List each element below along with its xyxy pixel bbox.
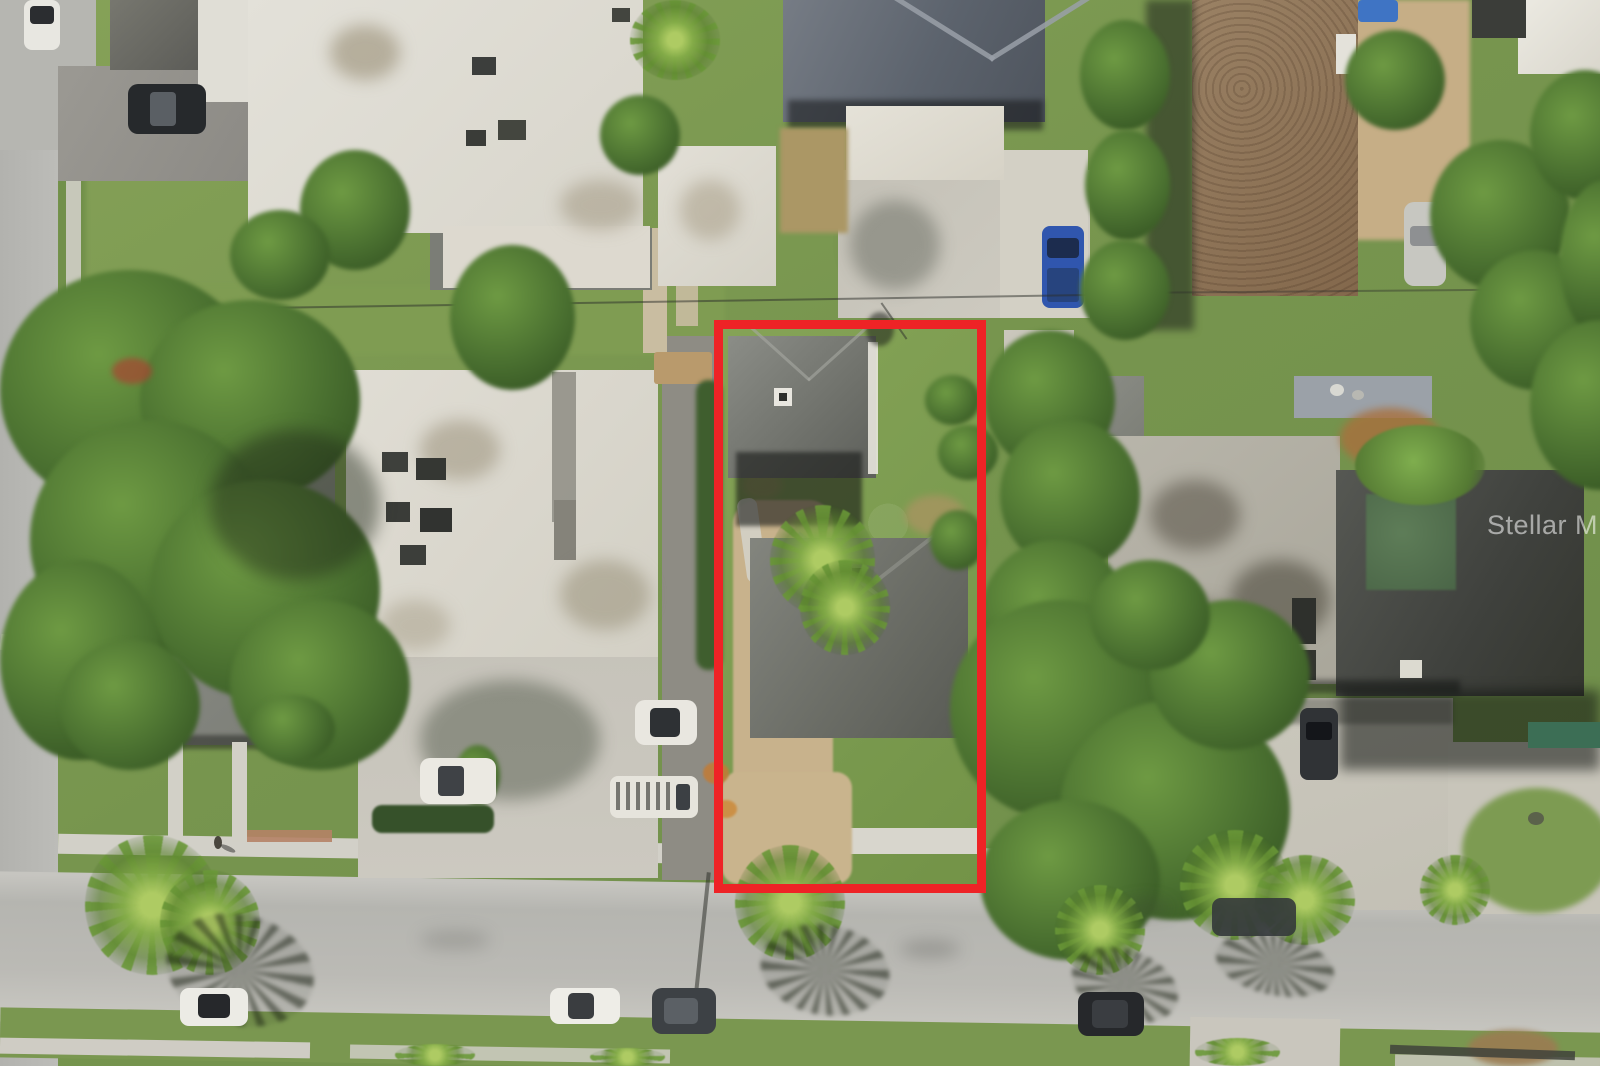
bottom-edge-palm (590, 1048, 665, 1066)
hedge-trees-alley (1085, 130, 1170, 240)
street-car-dark-sedan (1212, 898, 1296, 936)
white-suv-window (438, 766, 464, 796)
hedge-trees-alley (1080, 20, 1170, 130)
rooftop-ac-unit (472, 57, 496, 75)
palm-tree (630, 0, 720, 80)
palm-fronds-bright (1355, 425, 1485, 505)
parked-car-windshield (150, 92, 176, 126)
teal-awning (1528, 722, 1600, 748)
black-suv-roof (1092, 1000, 1128, 1028)
road-stain (900, 940, 960, 958)
hedge-strip (372, 805, 494, 833)
patio-furniture (1352, 390, 1364, 400)
office-stairwell (554, 500, 576, 560)
front-walk-2 (232, 742, 247, 842)
parked-car-window (1306, 722, 1332, 740)
street-palm (1420, 855, 1490, 925)
street-car-window (568, 993, 594, 1019)
white-roof-stain-2 (560, 180, 640, 230)
parked-car-dark-right-drive (1300, 708, 1338, 780)
backyard-tree (450, 245, 575, 390)
bottom-edge-palm (395, 1044, 475, 1066)
driveway-tree-shadow (850, 200, 940, 290)
hedge-trees-alley (1080, 240, 1170, 340)
sewer-cover (1528, 812, 1544, 825)
ladder-truck-cab-window (676, 784, 690, 810)
big-canopy (1090, 560, 1210, 670)
aerial-photo-canvas: Stellar MLS (0, 0, 1600, 1066)
watermark-stellar-mls: Stellar MLS (1487, 510, 1600, 541)
top-right-dark-structure (1472, 0, 1526, 38)
rooftop-ac-unit (466, 130, 486, 146)
white-roof-stain-1 (330, 25, 400, 80)
blue-truck-bed (1047, 268, 1079, 302)
white-garage-front (846, 106, 1004, 180)
office-roof-stain-2 (560, 560, 650, 630)
road-stain (420, 930, 490, 950)
parked-car-window (30, 6, 54, 24)
brick-path (247, 830, 332, 842)
brown-roof-texture (1192, 0, 1358, 296)
alley-walkway-2 (676, 286, 698, 326)
rooftop-ac-unit (386, 502, 410, 522)
right-side-tree (1345, 30, 1445, 130)
property-highlight-outline (714, 320, 986, 893)
small-tree (230, 210, 330, 300)
rooftop-ac-unit (400, 545, 426, 565)
white-rooftop-unit (1400, 660, 1422, 678)
oak-canopy (60, 640, 200, 770)
bottom-edge-palm (1195, 1038, 1280, 1066)
mossy-green-roof (1366, 494, 1456, 590)
ladder-truck-rack (616, 782, 670, 810)
convertible-interior (650, 708, 680, 737)
rooftop-ac-unit (612, 8, 630, 22)
rooftop-ac-unit (498, 120, 526, 140)
red-flowering-bush (112, 358, 152, 384)
blue-truck-cab-window (1047, 238, 1079, 258)
rooftop-ac-unit (416, 458, 446, 480)
blue-tarp (1358, 0, 1398, 22)
hedge-blob (250, 695, 335, 763)
rooftop-ac-unit (382, 452, 408, 472)
dry-grass-strip (780, 128, 848, 233)
flat-roof-stain (1150, 480, 1240, 550)
hatch-roof (664, 998, 698, 1024)
backyard-bush (600, 95, 680, 175)
rooftop-ac-unit (420, 508, 452, 532)
patio-furniture (1330, 384, 1344, 396)
top-right-white-roof (1518, 0, 1600, 74)
tree-shadow (210, 430, 380, 580)
coupe-interior (198, 994, 230, 1018)
road-stain (1120, 900, 1170, 916)
garage-roof-stain (680, 180, 740, 240)
wood-pallet (654, 352, 712, 384)
